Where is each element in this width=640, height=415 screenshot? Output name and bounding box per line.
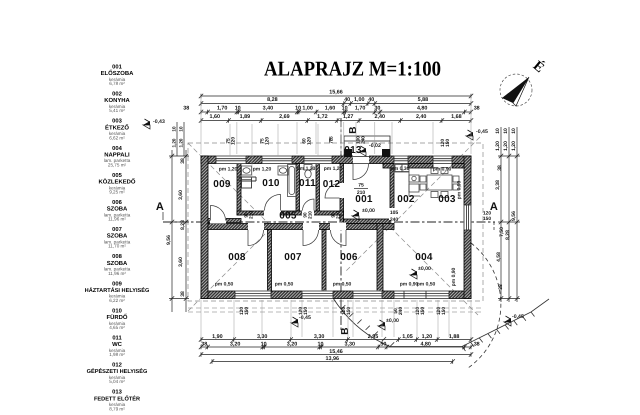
svg-text:150: 150: [483, 216, 491, 222]
svg-text:15,46: 15,46: [329, 349, 343, 355]
svg-text:013: 013: [112, 389, 122, 396]
svg-text:pm 0,50: pm 0,50: [215, 282, 234, 288]
svg-text:1,27: 1,27: [343, 114, 354, 120]
svg-text:pm 0,36: pm 0,36: [391, 166, 410, 172]
svg-text:210: 210: [336, 211, 341, 219]
svg-text:1,70: 1,70: [355, 106, 366, 112]
svg-text:6,78 m²: 6,78 m²: [109, 81, 125, 86]
svg-text:009: 009: [112, 280, 122, 287]
svg-text:1,98 m²: 1,98 m²: [109, 352, 125, 357]
svg-text:B: B: [340, 327, 351, 335]
svg-text:ÉTKEZŐ: ÉTKEZŐ: [105, 123, 129, 131]
svg-text:150: 150: [346, 307, 352, 315]
svg-text:B: B: [348, 126, 359, 134]
svg-text:005: 005: [279, 211, 297, 222]
svg-text:11,96 m²: 11,96 m²: [108, 271, 126, 276]
svg-text:240: 240: [361, 136, 366, 144]
svg-text:30: 30: [374, 106, 380, 112]
svg-text:pm 0,50: pm 0,50: [417, 282, 436, 288]
svg-text:1,72: 1,72: [317, 114, 328, 120]
svg-text:pm 0,90: pm 0,90: [400, 282, 419, 288]
svg-text:1,20: 1,20: [171, 138, 176, 147]
svg-text:3,30: 3,30: [345, 342, 356, 348]
svg-text:3,60: 3,60: [178, 257, 184, 267]
svg-text:6,62 m²: 6,62 m²: [109, 135, 125, 140]
svg-text:105: 105: [390, 210, 399, 216]
svg-text:KÖZLEKEDŐ: KÖZLEKEDŐ: [99, 178, 136, 186]
svg-text:011: 011: [112, 335, 122, 342]
svg-text:11,70 m²: 11,70 m²: [108, 244, 126, 249]
svg-text:3,20: 3,20: [230, 342, 241, 348]
svg-text:1,88: 1,88: [449, 334, 460, 340]
svg-text:38: 38: [474, 106, 480, 112]
svg-text:-0,43: -0,43: [153, 119, 165, 125]
svg-text:3,40: 3,40: [263, 106, 274, 112]
svg-text:,50: ,50: [379, 342, 387, 348]
svg-text:15,66: 15,66: [329, 90, 343, 96]
svg-text:8,28: 8,28: [180, 220, 186, 230]
svg-text:120: 120: [231, 137, 237, 145]
svg-text:011: 011: [299, 178, 316, 189]
svg-text:002: 002: [112, 91, 122, 98]
svg-text:pm 1,20: pm 1,20: [324, 166, 343, 172]
svg-text:1,90: 1,90: [212, 334, 223, 340]
svg-text:120: 120: [265, 137, 271, 145]
svg-text:pm 0,50: pm 0,50: [275, 282, 294, 288]
svg-text:003: 003: [112, 118, 122, 125]
svg-text:210: 210: [357, 190, 366, 196]
svg-text:1,00: 1,00: [354, 97, 365, 103]
svg-text:75: 75: [329, 138, 335, 144]
svg-text:10: 10: [342, 106, 348, 112]
svg-text:ELŐSZOBA: ELŐSZOBA: [101, 69, 134, 77]
svg-text:010: 010: [112, 307, 122, 314]
svg-text:150: 150: [303, 307, 309, 315]
svg-text:003: 003: [438, 194, 456, 205]
svg-text:40: 40: [368, 97, 374, 103]
svg-text:002: 002: [397, 194, 415, 205]
svg-text:1,20: 1,20: [422, 334, 433, 340]
svg-text:ALAPRAJZ M=1:100: ALAPRAJZ M=1:100: [264, 57, 441, 81]
svg-text:38: 38: [201, 342, 207, 348]
svg-text:pm 0,90: pm 0,90: [451, 267, 457, 286]
svg-text:9,56: 9,56: [166, 235, 172, 245]
svg-text:4,80: 4,80: [417, 106, 428, 112]
svg-text:150: 150: [420, 307, 426, 315]
svg-text:pm 0,90: pm 0,90: [457, 180, 463, 199]
svg-text:pm 0,50: pm 0,50: [333, 282, 352, 288]
svg-text:-0,45: -0,45: [512, 314, 524, 320]
svg-text:11,96 m²: 11,96 m²: [108, 217, 126, 222]
svg-text:1,20: 1,20: [495, 141, 501, 151]
svg-text:120: 120: [483, 211, 491, 217]
svg-text:150: 150: [441, 307, 447, 315]
svg-text:40: 40: [344, 97, 350, 103]
svg-text:10: 10: [171, 126, 176, 132]
svg-text:4,58: 4,58: [496, 252, 502, 262]
svg-text:8,79 m²: 8,79 m²: [109, 406, 125, 411]
svg-text:1,20: 1,20: [511, 141, 517, 151]
svg-text:8,28: 8,28: [505, 230, 511, 240]
svg-text:2,40: 2,40: [375, 114, 386, 120]
svg-text:1,89: 1,89: [240, 114, 251, 120]
svg-text:4,65 m²: 4,65 m²: [109, 325, 125, 330]
svg-text:25,75 m²: 25,75 m²: [108, 162, 127, 167]
svg-text:5,88: 5,88: [418, 97, 429, 103]
svg-text:5,04 m²: 5,04 m²: [109, 379, 125, 384]
svg-text:FÜRDŐ: FÜRDŐ: [107, 313, 128, 321]
svg-text:38: 38: [498, 284, 504, 290]
svg-text:38: 38: [474, 342, 480, 348]
svg-text:210: 210: [308, 211, 313, 219]
svg-text:150: 150: [445, 139, 451, 147]
svg-text:±0,00: ±0,00: [362, 208, 375, 214]
svg-text:2,40: 2,40: [416, 114, 427, 120]
svg-text:008: 008: [112, 253, 122, 260]
svg-text:004: 004: [112, 145, 122, 152]
svg-text:013: 013: [344, 145, 362, 156]
svg-text:1,20: 1,20: [503, 141, 509, 151]
svg-text:38: 38: [180, 158, 186, 164]
svg-text:4,80: 4,80: [420, 342, 431, 348]
svg-text:9,56: 9,56: [511, 211, 517, 221]
svg-text:150: 150: [244, 307, 250, 315]
svg-text:pm 1,20: pm 1,20: [253, 167, 272, 173]
svg-text:240: 240: [390, 217, 399, 223]
svg-text:007: 007: [284, 252, 302, 263]
svg-text:A: A: [156, 201, 164, 213]
svg-text:2,69: 2,69: [279, 114, 290, 120]
svg-text:±0,00: ±0,00: [418, 266, 431, 272]
svg-text:1,70: 1,70: [217, 106, 228, 112]
svg-text:006: 006: [340, 252, 358, 263]
svg-text:10: 10: [235, 106, 241, 112]
svg-text:pm 0,90: pm 0,90: [433, 167, 452, 173]
svg-text:8,28: 8,28: [267, 97, 278, 103]
svg-text:pm 1,20: pm 1,20: [219, 167, 238, 173]
svg-text:1,20: 1,20: [178, 138, 183, 147]
svg-text:012: 012: [112, 362, 122, 369]
svg-text:006: 006: [112, 199, 122, 206]
svg-text:75: 75: [358, 183, 364, 189]
svg-text:38: 38: [497, 165, 503, 171]
svg-text:10: 10: [511, 128, 517, 134]
svg-text:1,60: 1,60: [210, 114, 221, 120]
svg-text:10: 10: [261, 342, 267, 348]
svg-text:008: 008: [228, 252, 246, 263]
svg-text:010: 010: [262, 178, 280, 189]
svg-text:5,41 m²: 5,41 m²: [109, 108, 125, 113]
svg-text:3,38: 3,38: [495, 180, 501, 190]
svg-text:2,95: 2,95: [368, 334, 379, 340]
svg-text:001: 001: [112, 64, 122, 71]
svg-text:pm 1,20: pm 1,20: [297, 166, 316, 172]
svg-text:38: 38: [180, 291, 186, 297]
svg-text:10: 10: [503, 128, 509, 134]
svg-text:007: 007: [112, 226, 122, 233]
svg-text:10: 10: [295, 106, 301, 112]
svg-text:1,00: 1,00: [302, 106, 313, 112]
svg-text:1,05: 1,05: [402, 334, 413, 340]
svg-text:-0,45: -0,45: [476, 129, 488, 135]
svg-text:240: 240: [398, 307, 404, 315]
svg-text:3,30: 3,30: [314, 334, 325, 340]
svg-text:10: 10: [495, 128, 501, 134]
svg-text:1,60: 1,60: [325, 106, 336, 112]
svg-text:10: 10: [318, 342, 324, 348]
svg-text:±0,00: ±0,00: [386, 318, 399, 324]
svg-text:10: 10: [178, 126, 183, 132]
svg-text:13,96: 13,96: [326, 356, 340, 362]
svg-text:3,60: 3,60: [178, 190, 184, 200]
svg-text:1,68: 1,68: [451, 114, 462, 120]
svg-text:120: 120: [307, 137, 313, 145]
svg-text:9,25 m²: 9,25 m²: [109, 190, 125, 195]
svg-text:3,20: 3,20: [287, 342, 298, 348]
svg-text:012: 012: [323, 179, 341, 190]
svg-text:6,22 m²: 6,22 m²: [109, 298, 125, 303]
svg-text:38: 38: [183, 106, 189, 112]
svg-text:005: 005: [112, 172, 122, 179]
svg-text:004: 004: [415, 252, 433, 263]
svg-text:210: 210: [249, 211, 254, 219]
svg-text:A: A: [490, 201, 498, 213]
svg-text:009: 009: [213, 179, 231, 190]
